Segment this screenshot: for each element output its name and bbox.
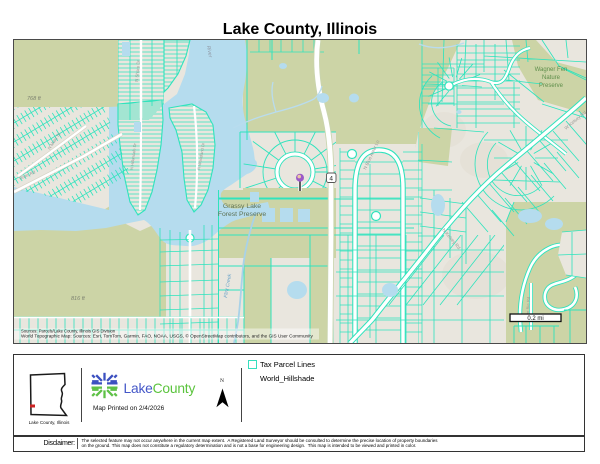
svg-text:Nature: Nature <box>542 75 561 81</box>
svg-text:0.2 mi: 0.2 mi <box>527 316 543 322</box>
svg-text:768 ft: 768 ft <box>27 96 41 102</box>
svg-text:Grassy Lake: Grassy Lake <box>223 203 261 210</box>
svg-text:Wagner Fen: Wagner Fen <box>535 67 568 73</box>
svg-text:World Topographic Map: Sources: World Topographic Map: Sources: Esri, To… <box>21 333 314 339</box>
svg-text:4: 4 <box>329 175 333 182</box>
svg-text:Preserve: Preserve <box>539 83 564 89</box>
svg-text:De Bie Rd: De Bie Rd <box>525 296 531 316</box>
svg-text:Forest Preserve: Forest Preserve <box>218 211 267 218</box>
svg-text:816 ft: 816 ft <box>71 296 85 302</box>
